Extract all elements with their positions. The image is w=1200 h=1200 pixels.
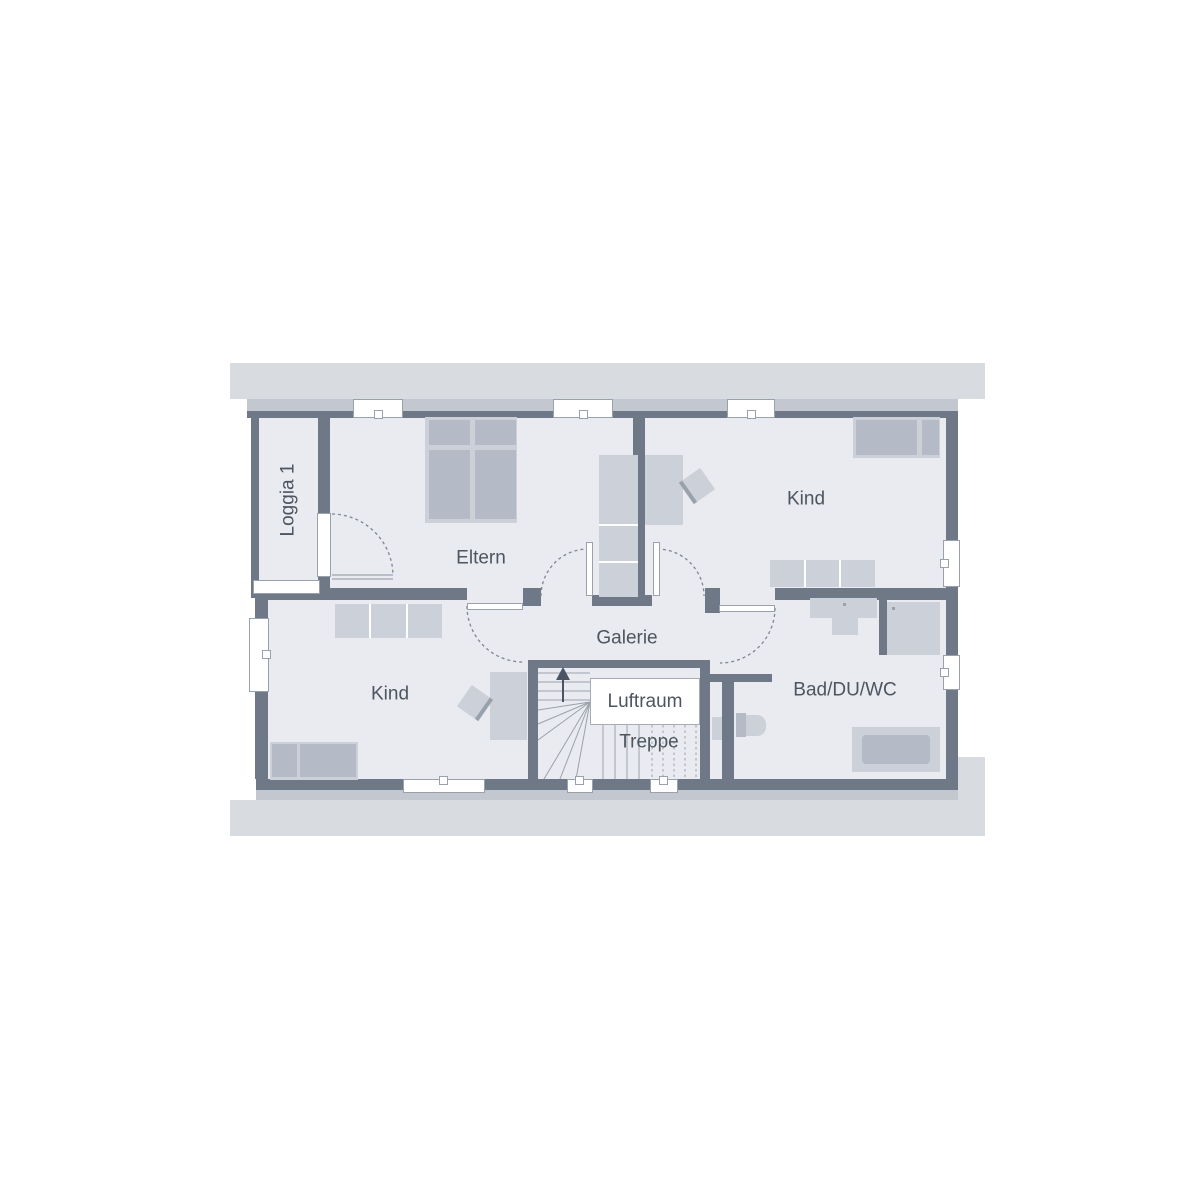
- shaft: [712, 717, 722, 740]
- wardrobe-cell: [599, 563, 638, 598]
- wall-shower-partition: [879, 598, 887, 655]
- room-label-bad: Bad/DU/WC: [793, 681, 896, 700]
- wardrobe-cell: [599, 526, 638, 563]
- wardrobe-eltern: [599, 455, 638, 597]
- wardrobe-cell: [335, 604, 371, 638]
- wall-middle-b: [523, 588, 541, 606]
- desk-kind-top: [645, 455, 683, 525]
- wall-bad-stub: [710, 674, 772, 682]
- door-leaf-kind-bottom: [467, 603, 523, 610]
- wardrobe-cell: [599, 455, 638, 526]
- shower-drain-dot: [892, 607, 895, 610]
- bathtub-inner: [862, 735, 930, 764]
- sill-band-bottom: [256, 790, 958, 800]
- vanity-basin: [832, 618, 858, 635]
- room-label-loggia: Loggia 1: [279, 464, 298, 537]
- door-leaf-loggia: [317, 513, 331, 577]
- window-handle: [374, 410, 383, 419]
- window-handle: [262, 650, 271, 659]
- vanity-counter: [810, 598, 877, 618]
- room-label-kind-top: Kind: [787, 490, 825, 509]
- wardrobe-kind-top: [770, 560, 875, 587]
- window-handle: [579, 410, 588, 419]
- toilet-bowl: [746, 715, 766, 736]
- room-label-treppe: Treppe: [619, 733, 679, 752]
- door-leaf-kind-top: [653, 542, 660, 596]
- wall-middle-c: [705, 588, 720, 613]
- luftraum-void: Luftraum: [590, 678, 700, 725]
- wall-right: [946, 411, 958, 779]
- wardrobe-cell: [371, 604, 407, 638]
- room-label-kind-bottom: Kind: [371, 685, 409, 704]
- wardrobe-cell: [841, 560, 875, 587]
- wardrobe-cell: [408, 604, 442, 638]
- bed-kind-top-mattress: [856, 420, 917, 455]
- window-handle: [659, 776, 668, 785]
- door-leaf-bad: [719, 605, 775, 612]
- window-handle: [940, 559, 949, 568]
- wall-left-upper: [251, 411, 259, 598]
- window-handle: [940, 668, 949, 677]
- wall-bad-partition: [722, 682, 734, 779]
- wall-stair-top: [528, 660, 710, 668]
- bed-kind-bottom-mattress: [300, 744, 356, 777]
- floor-plan-canvas: Luftraum: [0, 0, 1200, 1200]
- bed-kind-top-pillow: [922, 420, 939, 455]
- room-label-eltern: Eltern: [456, 549, 506, 568]
- room-label-luftraum: Luftraum: [608, 692, 683, 711]
- roof-band-bottom: [230, 800, 985, 836]
- wardrobe-cell: [770, 560, 806, 587]
- bed-eltern-headboard-right: [475, 420, 516, 445]
- wardrobe-cell: [806, 560, 842, 587]
- window-handle: [575, 776, 584, 785]
- roof-band-corner: [958, 757, 985, 800]
- bed-eltern-mattress-right: [475, 450, 516, 519]
- window-handle: [747, 410, 756, 419]
- bed-kind-bottom-pillow: [272, 744, 297, 777]
- wall-stair-right: [700, 660, 710, 779]
- vanity-faucet-dot: [843, 603, 846, 606]
- wall-stair-left: [528, 660, 538, 779]
- room-label-galerie: Galerie: [596, 629, 657, 648]
- door-leaf-eltern: [586, 542, 593, 596]
- bed-eltern-headboard-left: [429, 420, 470, 445]
- desk-kind-bottom: [490, 672, 527, 740]
- window-handle: [439, 776, 448, 785]
- wardrobe-kind-bottom: [335, 604, 442, 638]
- bed-eltern-mattress-left: [429, 450, 470, 519]
- wall-bottom: [256, 779, 958, 790]
- roof-band-top: [230, 363, 985, 399]
- window-loggia-bottom: [253, 580, 320, 594]
- toilet-tank: [736, 713, 746, 737]
